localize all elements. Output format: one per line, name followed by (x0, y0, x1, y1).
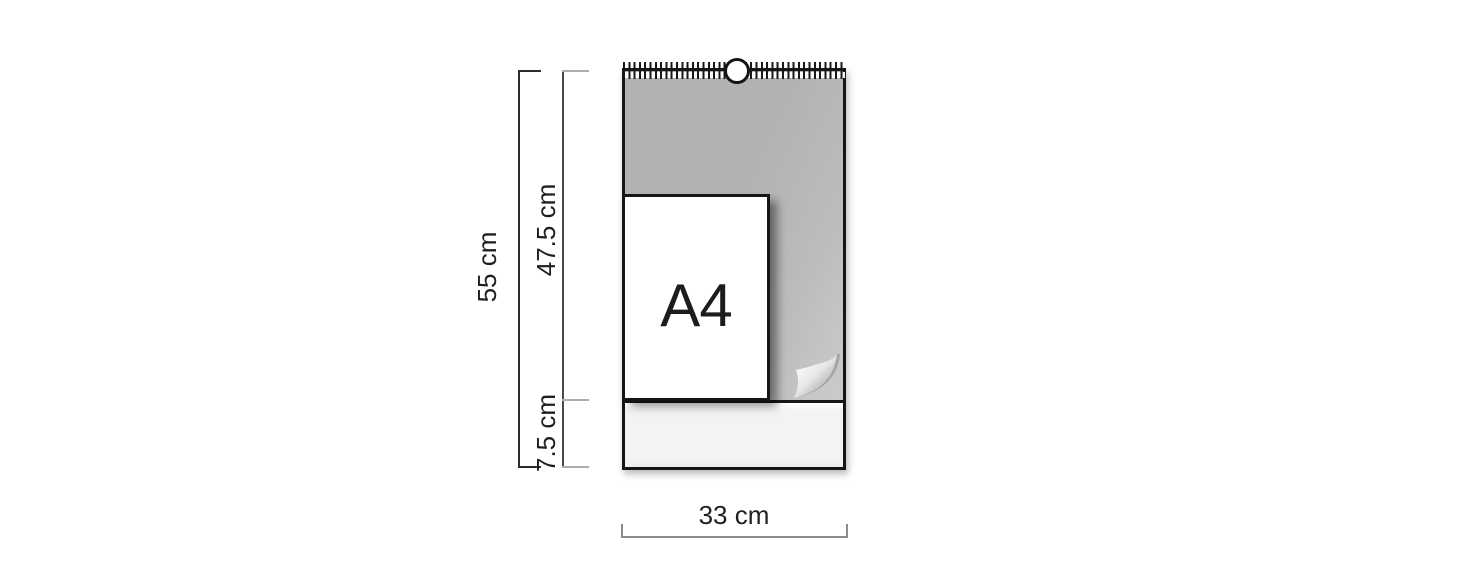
a4-sheet: A4 (622, 194, 770, 401)
dim-width-tick-left (621, 524, 623, 538)
dim-width-label: 33 cm (654, 499, 814, 531)
dim-total-height-tick-top (518, 70, 541, 72)
dim-sections-tick-middle (562, 399, 589, 401)
hanging-ring-icon (724, 58, 750, 84)
dim-total-height-label: 55 cm (471, 187, 503, 347)
dim-total-height-line (518, 70, 520, 468)
a4-label: A4 (660, 276, 731, 336)
dim-footer-height-label: 7.5 cm (530, 353, 562, 513)
dim-sections-line (562, 70, 564, 468)
dim-width-line (621, 536, 848, 538)
page-curl-icon (784, 352, 842, 400)
diagram-canvas: A4 55 cm 47.5 cm 7.5 cm 33 cm (0, 0, 1470, 576)
dim-sections-tick-top (562, 70, 589, 72)
dim-width-tick-right (846, 524, 848, 538)
dim-sections-tick-bottom (562, 466, 589, 468)
calendar-footer-strip (625, 403, 843, 467)
dim-sheet-height-label: 47.5 cm (530, 150, 562, 310)
